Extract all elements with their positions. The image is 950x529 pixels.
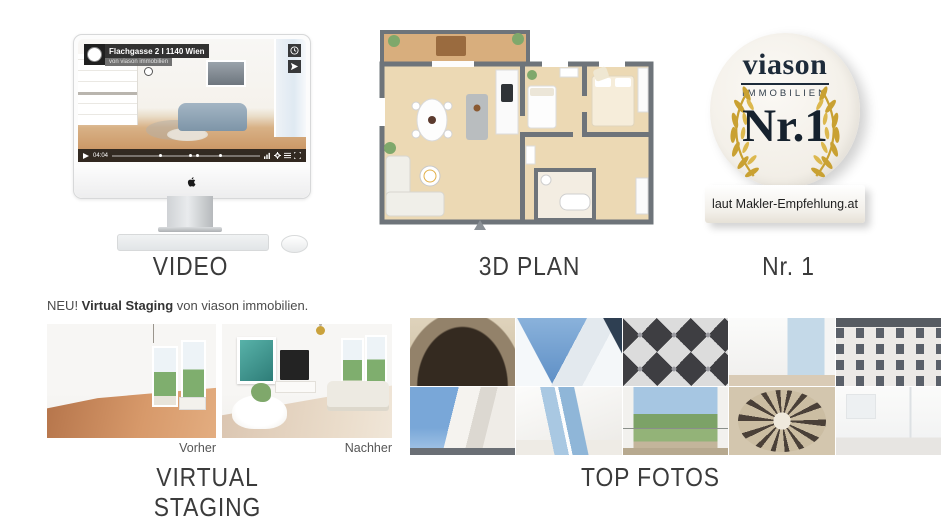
video-control-bar: 04:04 (78, 149, 306, 162)
badge-brand: viason (710, 50, 860, 80)
volume-bars-icon (264, 152, 271, 159)
before-label: Vorher (47, 441, 216, 455)
video-right-controls (264, 152, 301, 159)
video-section-label: VIDEO (96, 251, 285, 281)
imac-chin (74, 165, 310, 198)
photo-modern-white-architecture (516, 318, 621, 386)
photo-attic-skylights (516, 387, 621, 455)
plan-section-label: 3D PLAN (435, 251, 624, 281)
photo-corner-building-blue-sky (410, 387, 515, 455)
watch-later-icon (288, 44, 301, 57)
imac-stand-foot (158, 227, 222, 232)
imac-stand (167, 196, 213, 229)
staging-before-photo (47, 324, 216, 438)
staging-section-label: VIRTUAL STAGING (113, 462, 302, 522)
window (152, 346, 178, 407)
photo-bright-interior-window (729, 318, 834, 386)
floor-plan (374, 28, 659, 232)
award-badge-base: laut Makler-Empfehlung.at (705, 185, 865, 223)
video-subtitle: von viason immobilien (105, 58, 172, 66)
photo-ornamental-floor-tiles (623, 318, 728, 386)
staging-intro-suffix: von viason immobilien. (173, 298, 308, 313)
photo-white-bathroom (836, 387, 941, 455)
chapter-dot (196, 154, 199, 157)
wall-art (237, 337, 275, 384)
list-icon (284, 152, 291, 159)
staging-intro: NEU! Virtual Staging von viason immobili… (47, 298, 308, 313)
video-top-actions (288, 44, 301, 73)
sideboard (275, 381, 316, 393)
spiral-staircase-shape (738, 390, 826, 452)
award-section-label: Nr. 1 (694, 251, 883, 281)
photo-grid (410, 318, 941, 455)
ceiling-cord (153, 324, 154, 343)
photo-balcony-outlook (623, 387, 728, 455)
badge-rank: Nr.1 (710, 103, 860, 150)
tv-screen (280, 350, 309, 380)
chapter-dot (219, 154, 222, 157)
photo-spiral-staircase (729, 387, 834, 455)
award-badge: viason IMMOBILIEN Nr.1 (710, 33, 860, 188)
chapter-dot (159, 154, 162, 157)
staging-intro-prefix: NEU! (47, 298, 82, 313)
imac-display: Flachgasse 2 I 1140 Wien von viason immo… (73, 34, 311, 199)
staging-after-photo (222, 324, 392, 438)
play-icon (83, 153, 89, 159)
radiator (179, 397, 206, 410)
staging-intro-bold: Virtual Staging (82, 298, 174, 313)
video-title-texts: Flachgasse 2 I 1140 Wien von viason immo… (105, 44, 209, 66)
video-sofa (178, 103, 246, 131)
video-wall-picture (206, 60, 246, 87)
video-wall-clock (144, 67, 153, 76)
sofa (327, 381, 388, 411)
after-label: Nachher (222, 441, 392, 455)
badge-caption: laut Makler-Empfehlung.at (712, 197, 858, 211)
video-title: Flachgasse 2 I 1140 Wien (105, 44, 209, 58)
viason-channel-logo-icon (84, 44, 105, 65)
share-icon (288, 60, 301, 73)
plant (251, 383, 271, 401)
floor-plan-illustration (374, 28, 659, 232)
video-timestamp: 04:04 (93, 153, 108, 159)
gear-icon (274, 152, 281, 159)
photo-ornate-entrance-gate (410, 318, 515, 386)
expand-icon (294, 152, 301, 159)
photo-classic-viennese-facade (836, 318, 941, 386)
apple-logo-icon (186, 175, 198, 189)
video-player: Flachgasse 2 I 1140 Wien von viason immo… (78, 39, 306, 162)
video-progress-bar (112, 155, 260, 157)
fotos-section-label: TOP FOTOS (556, 462, 745, 492)
promo-flyer: Flachgasse 2 I 1140 Wien von viason immo… (0, 0, 950, 529)
bathroom-mirror-shape (846, 394, 875, 419)
chapter-dot (189, 154, 192, 157)
video-title-badge: Flachgasse 2 I 1140 Wien von viason immo… (84, 44, 209, 66)
pendant-lamp (316, 326, 325, 335)
apple-keyboard (117, 234, 269, 251)
